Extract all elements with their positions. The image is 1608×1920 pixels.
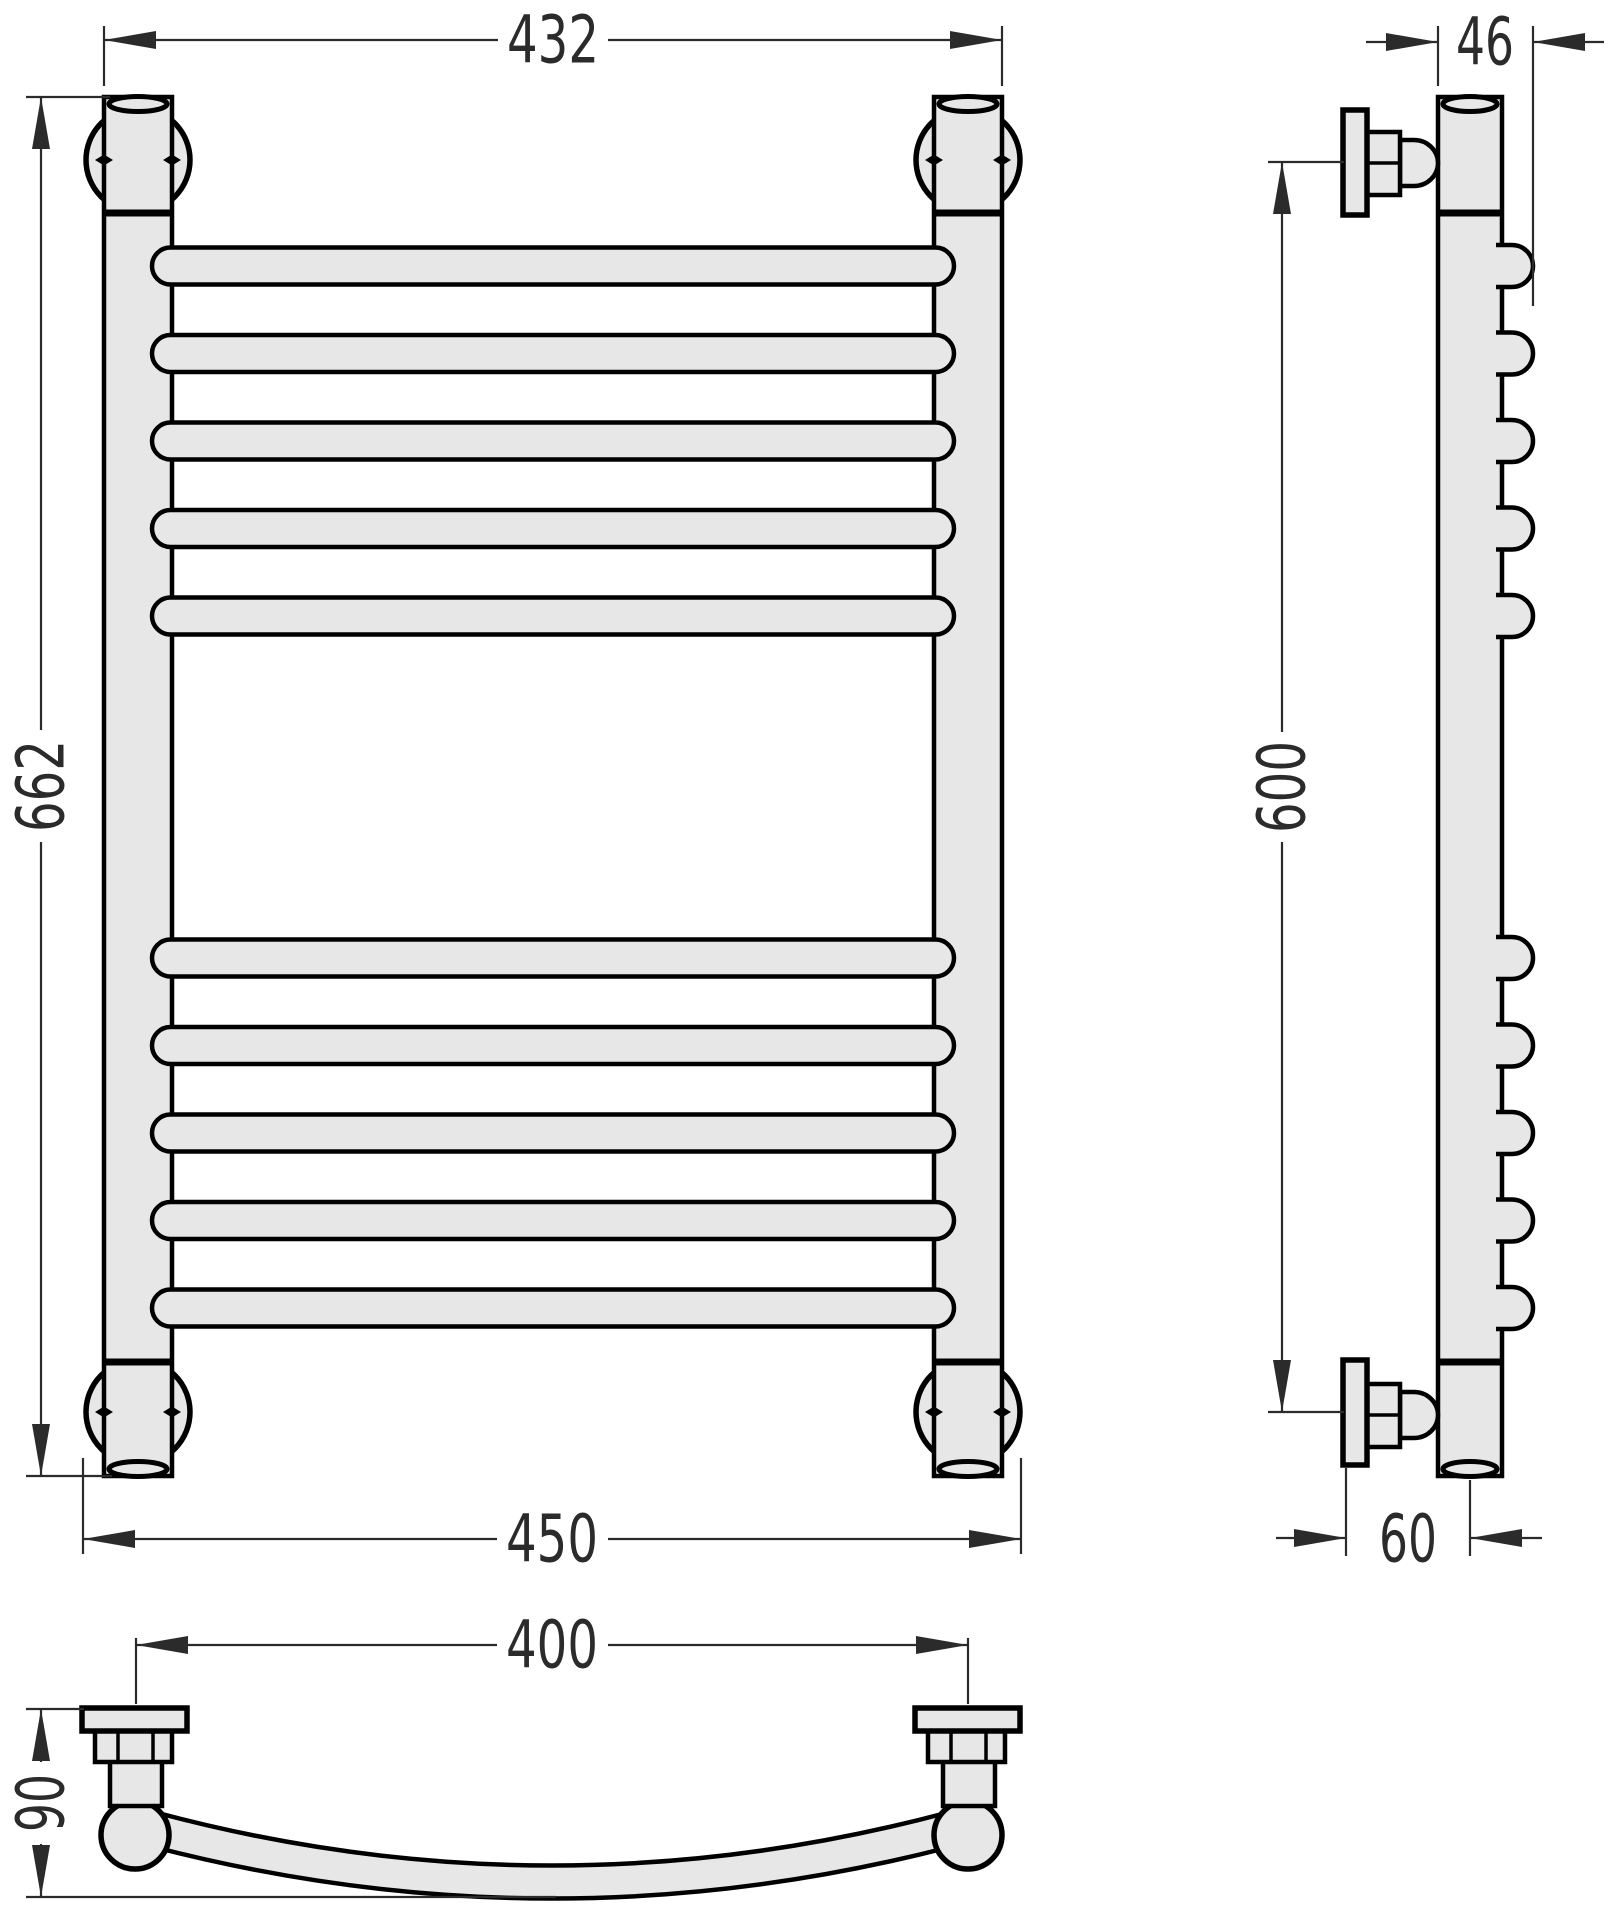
top-right-mount <box>915 1708 1020 1806</box>
dim-label-400: 400 <box>506 1607 598 1684</box>
front-left-post-top-cap <box>109 97 167 112</box>
dimension-outer-width-top: 432 <box>104 2 1002 87</box>
bracket-stem <box>1400 140 1438 186</box>
side-view <box>1343 97 1533 1477</box>
dim-label-46: 46 <box>1456 4 1514 81</box>
rung <box>152 248 954 285</box>
top-view <box>82 1708 1020 1899</box>
rung-end <box>1496 1112 1533 1154</box>
rung <box>152 423 954 460</box>
rung-end <box>1496 508 1533 550</box>
bracket-stem <box>1400 1392 1438 1438</box>
rung-end <box>1496 1200 1533 1242</box>
mount-nut <box>928 1731 1005 1762</box>
front-view <box>86 97 1020 1477</box>
rung <box>152 1202 954 1239</box>
dim-label-60: 60 <box>1379 1501 1437 1578</box>
side-wall-bracket-top <box>1343 110 1438 215</box>
rung <box>152 940 954 977</box>
side-post-top-cap <box>1443 97 1497 112</box>
side-post <box>1438 97 1502 1476</box>
rung <box>152 510 954 547</box>
rung <box>152 335 954 372</box>
mount-wall-plate <box>82 1708 187 1731</box>
dimension-overall-height: 662 <box>3 97 113 1476</box>
mount-wall-plate <box>915 1708 1020 1731</box>
rung-end <box>1496 420 1533 462</box>
rung <box>152 598 954 635</box>
rung-end <box>1496 1287 1533 1329</box>
rung-end <box>1496 1025 1533 1067</box>
rung <box>152 1027 954 1064</box>
dimension-mount-spacing: 400 <box>136 1607 968 1705</box>
dimension-wall-to-axis: 60 <box>1276 1468 1542 1578</box>
rung-end <box>1496 595 1533 637</box>
side-post-bottom-cap <box>1443 1462 1497 1477</box>
dimension-bracket-spacing: 600 <box>1244 162 1345 1412</box>
dim-label-450: 450 <box>506 1501 598 1578</box>
front-right-post-bottom-cap <box>939 1462 997 1477</box>
dim-label-432: 432 <box>507 2 599 79</box>
bracket-wall-plate <box>1343 110 1367 215</box>
dimension-outer-width-bottom: 450 <box>83 1458 1021 1578</box>
front-right-post <box>934 97 1002 1476</box>
mount-stem <box>110 1760 162 1806</box>
top-left-post-section <box>101 1801 169 1869</box>
rung <box>152 1115 954 1152</box>
technical-drawing-canvas: 432 662 450 46 600 <box>0 0 1608 1920</box>
top-right-post-section <box>934 1801 1002 1869</box>
front-left-post <box>104 97 172 1476</box>
rung-end <box>1496 245 1533 287</box>
side-wall-bracket-bottom <box>1343 1360 1438 1465</box>
rung <box>152 1290 954 1327</box>
mount-stem <box>943 1760 995 1806</box>
front-left-post-bottom-cap <box>109 1462 167 1477</box>
rung-end <box>1496 333 1533 375</box>
dim-label-90: 90 <box>3 1774 80 1832</box>
front-right-post-top-cap <box>939 97 997 112</box>
rung-end <box>1496 937 1533 979</box>
mount-nut <box>95 1731 172 1762</box>
front-rungs-bottom-group <box>152 940 954 1327</box>
bracket-wall-plate <box>1343 1360 1367 1465</box>
top-curved-rung <box>154 1813 950 1899</box>
top-left-mount <box>82 1708 187 1806</box>
dim-label-662: 662 <box>3 740 80 832</box>
dim-label-600: 600 <box>1244 741 1321 833</box>
front-rungs-top-group <box>152 248 954 635</box>
towel-rail-drawing: 432 662 450 46 600 <box>0 0 1608 1920</box>
